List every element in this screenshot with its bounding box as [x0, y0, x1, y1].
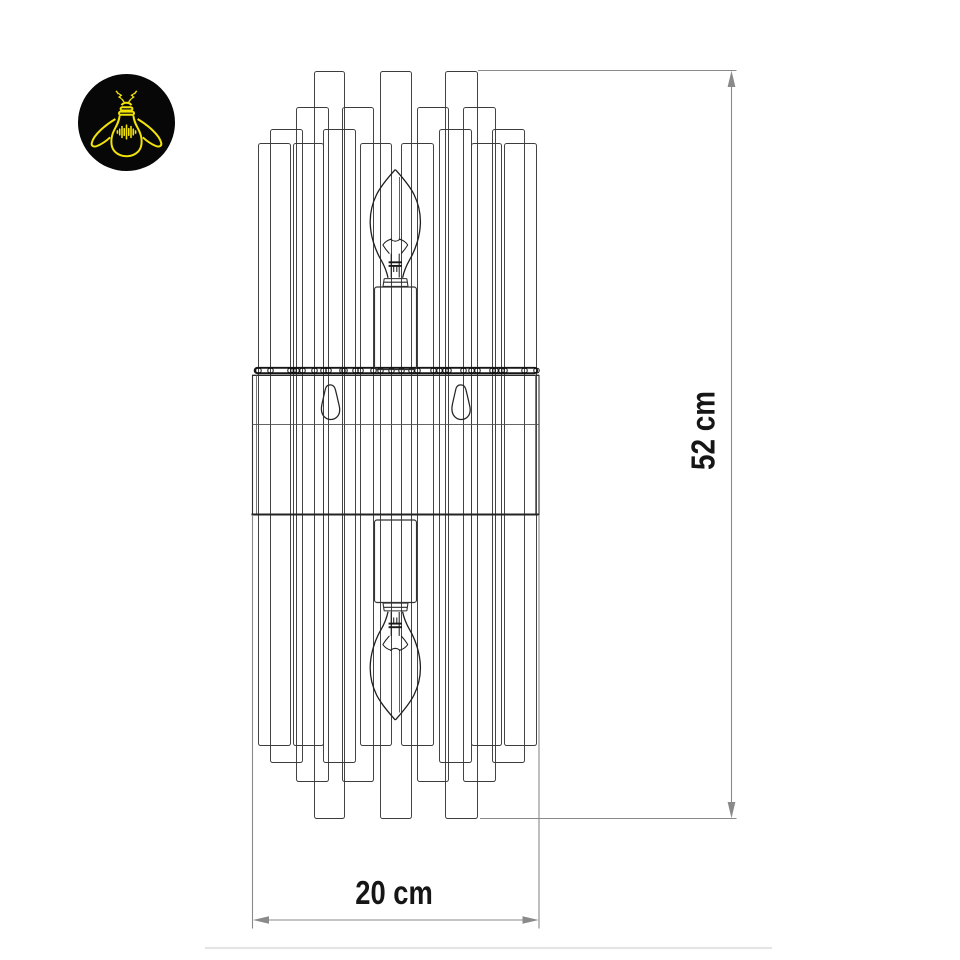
svg-text:20 cm: 20 cm — [355, 875, 433, 912]
svg-text:52 cm: 52 cm — [686, 391, 723, 470]
